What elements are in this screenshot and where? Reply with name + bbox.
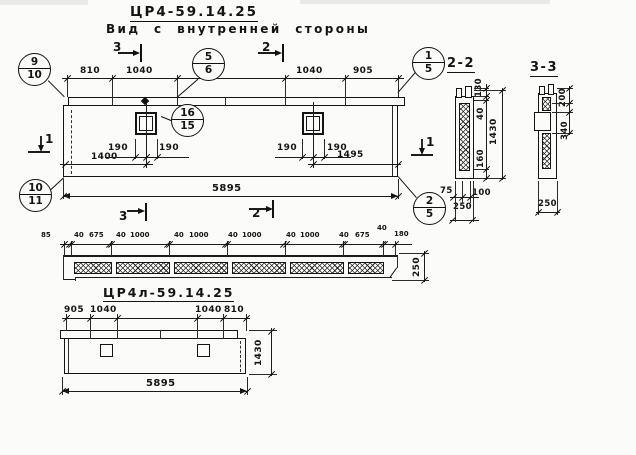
callout-16-15: 16 15 — [171, 104, 204, 137]
callout-leader-line — [48, 80, 65, 97]
callout-top-number: 9 — [31, 54, 38, 68]
dimension-line — [271, 328, 272, 376]
dimension-line — [62, 391, 247, 392]
callout-2-5: 2 5 — [413, 192, 446, 225]
callout-bottom-number: 10 — [27, 69, 42, 83]
callout-top-number: 2 — [426, 193, 433, 207]
callout-bottom-number: 15 — [180, 120, 195, 134]
callout-bottom-number: 6 — [205, 64, 212, 78]
callout-bottom-number: 5 — [426, 208, 433, 222]
dimension-overlay — [0, 0, 636, 455]
extension-line — [470, 181, 471, 203]
callout-bottom-number: 5 — [425, 63, 432, 77]
dimension-line — [63, 196, 398, 197]
callout-9-10: 9 10 — [18, 53, 51, 86]
callout-top-number: 5 — [205, 49, 212, 63]
dimension-line — [502, 88, 503, 180]
extension-line — [473, 181, 474, 222]
callout-top-number: 10 — [28, 180, 43, 194]
callout-top-number: 16 — [180, 105, 195, 119]
callout-10-11: 10 11 — [19, 179, 52, 212]
callout-leader-line — [161, 116, 172, 121]
dimension-line — [424, 251, 425, 282]
callout-top-number: 1 — [425, 48, 432, 62]
dimension-line — [308, 164, 401, 165]
blueprint-sheet: ЦР4-59.14.25 Вид с внутренней стороны ЦР… — [0, 0, 636, 455]
extension-line — [462, 181, 463, 203]
callout-bottom-number: 11 — [28, 195, 43, 209]
callout-1-5: 1 5 — [412, 47, 445, 80]
callout-5-6: 5 6 — [192, 48, 225, 81]
dimension-line — [60, 164, 153, 165]
callout-leader-line — [177, 79, 199, 98]
